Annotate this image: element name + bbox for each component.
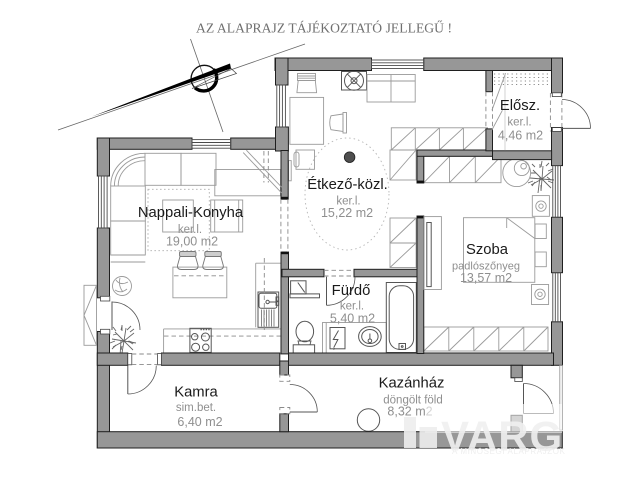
svg-text:Kamra: Kamra	[174, 385, 218, 401]
svg-text:Elősz.: Elősz.	[500, 98, 540, 114]
svg-text:13,57 m2: 13,57 m2	[460, 271, 512, 285]
svg-text:Szoba: Szoba	[466, 242, 509, 258]
svg-text:5,40 m2: 5,40 m2	[330, 312, 375, 326]
svg-text:4,46 m2: 4,46 m2	[498, 129, 543, 143]
svg-text:Kazánház: Kazánház	[379, 376, 445, 392]
svg-text:Fürdő: Fürdő	[332, 283, 371, 299]
svg-text:Étkező-közl.: Étkező-közl.	[307, 176, 388, 193]
svg-text:Nappali-Konyha: Nappali-Konyha	[138, 205, 244, 221]
svg-text:15,22 m2: 15,22 m2	[321, 206, 373, 220]
svg-text:ker.l.: ker.l.	[507, 117, 531, 129]
svg-text:A MINŐSÉGI ALAPRAJZOK: A MINŐSÉGI ALAPRAJZOK	[452, 447, 566, 456]
svg-text:6,40 m2: 6,40 m2	[177, 415, 222, 429]
svg-text:19,00 m2: 19,00 m2	[166, 235, 218, 249]
svg-text:AZ ALAPRAJZ TÁJÉKOZTATÓ JELLEG: AZ ALAPRAJZ TÁJÉKOZTATÓ JELLEGŰ !	[196, 20, 452, 36]
svg-text:sim.bet.: sim.bet.	[176, 402, 216, 414]
